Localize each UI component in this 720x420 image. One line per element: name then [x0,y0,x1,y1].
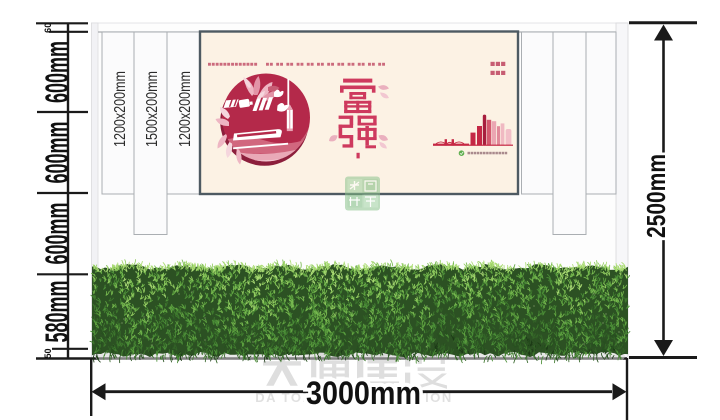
svg-text:60: 60 [43,23,53,33]
svg-text:600mm: 600mm [39,41,75,103]
svg-text:600mm: 600mm [39,203,75,265]
svg-text:1200x200mm: 1200x200mm [112,71,129,147]
svg-text:600mm: 600mm [39,122,75,184]
svg-text:580mm: 580mm [39,281,75,343]
svg-text:2500mm: 2500mm [641,154,671,238]
svg-text:3000mm: 3000mm [306,375,421,411]
svg-text:50: 50 [43,348,53,358]
svg-text:1200x200mm: 1200x200mm [177,71,194,147]
svg-text:1500x200mm: 1500x200mm [144,71,161,147]
